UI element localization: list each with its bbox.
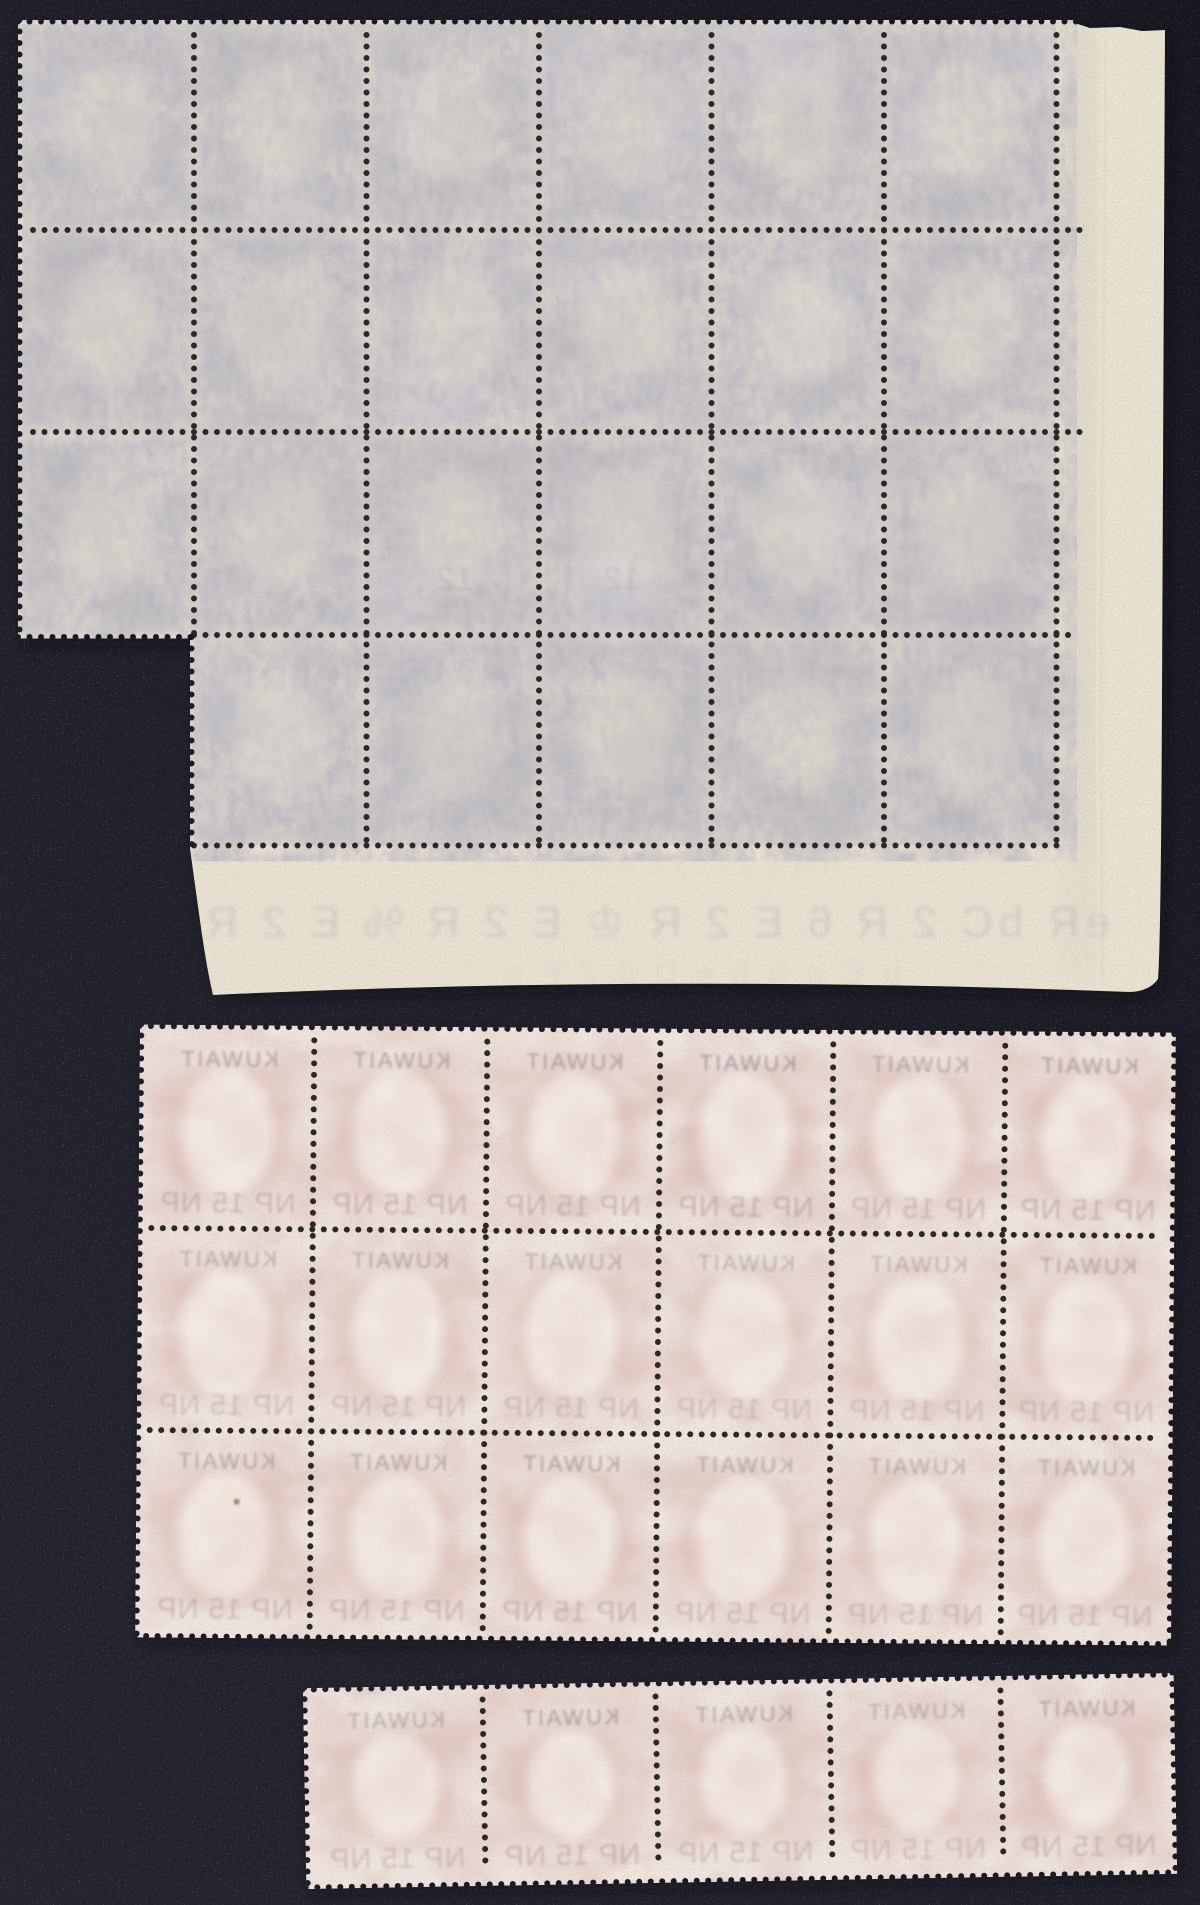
svg-text:KUWAIT: KUWAIT [349,1248,449,1274]
svg-text:bC: bC [950,370,996,403]
svg-text:NP 15 NP: NP 15 NP [846,1599,983,1632]
svg-text:NP 15 NP: NP 15 NP [850,1193,987,1226]
svg-text:bC: bC [403,793,449,826]
svg-text:E2R: E2R [390,652,474,690]
svg-text:KUWAIT: KUWAIT [697,1050,797,1076]
svg-text:Dz: Dz [235,570,280,603]
svg-text:b E o b 6 e D d 2 P o: b E o b 6 e D d 2 P o [499,955,901,991]
svg-text:2R: 2R [764,36,819,74]
svg-text:2b: 2b [268,178,309,211]
svg-text:R2: R2 [946,241,1001,279]
svg-text:NP 15 NP: NP 15 NP [674,1597,811,1630]
svg-text:E2R: E2R [256,660,340,698]
svg-text:KUWAIT: KUWAIT [868,1252,968,1278]
svg-text:KUWAIT: KUWAIT [866,1454,966,1480]
svg-text:NP 15 NP: NP 15 NP [1020,1830,1157,1864]
svg-text:KUWAIT: KUWAIT [1036,1455,1136,1481]
svg-text:NP 15 NP: NP 15 NP [156,1593,293,1626]
svg-text:Eb: Eb [801,173,846,206]
svg-text:KUWAIT: KUWAIT [1037,1253,1137,1279]
svg-text:NP 15 NP: NP 15 NP [501,1596,638,1629]
svg-text:12: 12 [603,560,641,598]
svg-text:KUWAIT: KUWAIT [345,1707,445,1734]
svg-text:NP 15 NP: NP 15 NP [503,1392,640,1425]
svg-text:2R: 2R [418,442,473,480]
svg-text:♔ E 2: ♔ E 2 [57,79,162,112]
svg-text:r u w a i t k u w a i t r: r u w a i t k u w a i t r u w [471,854,829,879]
svg-text:KUWAIT: KUWAIT [524,1049,624,1075]
svg-text:KUWAIT: KUWAIT [695,1250,795,1276]
svg-text:R2: R2 [940,457,995,495]
svg-text:NP 15 NP: NP 15 NP [331,1188,468,1221]
svg-text:2b: 2b [69,386,110,419]
svg-text:Dz: Dz [403,378,448,411]
svg-text:NP 15 NP: NP 15 NP [677,1836,814,1870]
svg-text:KUWAIT: KUWAIT [1039,1053,1139,1079]
svg-text:E2: E2 [233,252,287,290]
svg-text:R6: R6 [630,167,676,200]
svg-text:Dz: Dz [792,586,837,619]
svg-text:NP 15 NP: NP 15 NP [330,1390,467,1423]
svg-text:KUWAIT: KUWAIT [869,1052,969,1078]
svg-text:KUWAIT: KUWAIT [519,1704,619,1731]
svg-text:NP 15 NP: NP 15 NP [504,1190,641,1223]
svg-text:E2: E2 [761,253,815,291]
svg-text:R6: R6 [600,368,646,401]
svg-text:R6: R6 [963,580,1009,613]
svg-text:NP 15 NP: NP 15 NP [159,1187,296,1220]
svg-text:ER: ER [786,656,845,694]
svg-text:KUWAIT: KUWAIT [521,1451,621,1477]
svg-text:NP 15 NP: NP 15 NP [1016,1600,1153,1633]
svg-text:KUWAIT: KUWAIT [694,1452,794,1478]
svg-text:NP 15 NP: NP 15 NP [1018,1396,1155,1429]
svg-text:KUWAIT: KUWAIT [865,1698,965,1725]
svg-text:ER: ER [583,247,642,285]
svg-text:KUWAIT: KUWAIT [693,1701,793,1728]
svg-text:KUWAIT: KUWAIT [176,1448,276,1474]
svg-text:ER: ER [594,450,653,488]
svg-text:bC: bC [760,368,806,401]
svg-text:♔ E 2: ♔ E 2 [222,75,327,108]
svg-text:2 R ♔: 2 R ♔ [563,91,670,124]
svg-text:E2: E2 [85,243,139,281]
svg-text:NP 15 NP: NP 15 NP [848,1395,985,1428]
svg-text:NP 15 NP: NP 15 NP [158,1389,295,1422]
svg-text:Eb: Eb [630,791,675,824]
svg-text:NP 15 NP: NP 15 NP [849,1833,986,1867]
svg-text:R2: R2 [765,443,820,481]
svg-text:Dz: Dz [286,368,331,401]
svg-text:NP 15 NP: NP 15 NP [677,1191,814,1224]
svg-text:NP 15 NP: NP 15 NP [329,1842,466,1876]
svg-text:KUWAIT: KUWAIT [177,1246,277,1272]
svg-text:NP 15 NP: NP 15 NP [1019,1194,1156,1227]
svg-text:ER: ER [94,32,153,70]
svg-text:KUWAIT: KUWAIT [1036,1695,1136,1722]
svg-text:Dz: Dz [284,795,329,828]
svg-text:E2: E2 [932,662,986,700]
svg-text:12: 12 [593,770,631,808]
svg-text:E2R: E2R [577,45,661,83]
svg-text:E 2 R: E 2 R [929,78,1029,111]
svg-text:2b: 2b [105,572,146,605]
svg-text:NP 15 NP: NP 15 NP [503,1839,640,1873]
svg-text:♔ E 2: ♔ E 2 [753,88,858,121]
svg-text:KUWAIT: KUWAIT [179,1046,279,1072]
svg-text:eR bC 2 R 6 E 2 R ♔ E 2 R % E: eR bC 2 R 6 E 2 R ♔ E 2 R % E 2 R [200,898,1110,947]
svg-text:R6: R6 [412,175,458,208]
svg-text:E2R: E2R [415,250,499,288]
svg-text:KUWAIT: KUWAIT [522,1249,622,1275]
svg-text:Dz: Dz [935,792,980,825]
svg-text:NP 15 NP: NP 15 NP [676,1393,813,1426]
svg-text:12: 12 [436,560,474,598]
svg-text:R ♔ E: R ♔ E [393,86,503,119]
svg-text:R6: R6 [941,171,987,204]
svg-text:2b: 2b [78,183,119,216]
svg-text:KUWAIT: KUWAIT [348,1450,448,1476]
svg-text:E2R: E2R [50,460,134,498]
svg-text:NP 15 NP: NP 15 NP [328,1594,465,1627]
svg-text:E2: E2 [581,646,635,684]
svg-text:12: 12 [771,770,809,808]
svg-text:E2: E2 [248,462,302,500]
svg-text:KUWAIT: KUWAIT [351,1048,451,1074]
svg-text:R2: R2 [413,37,468,75]
